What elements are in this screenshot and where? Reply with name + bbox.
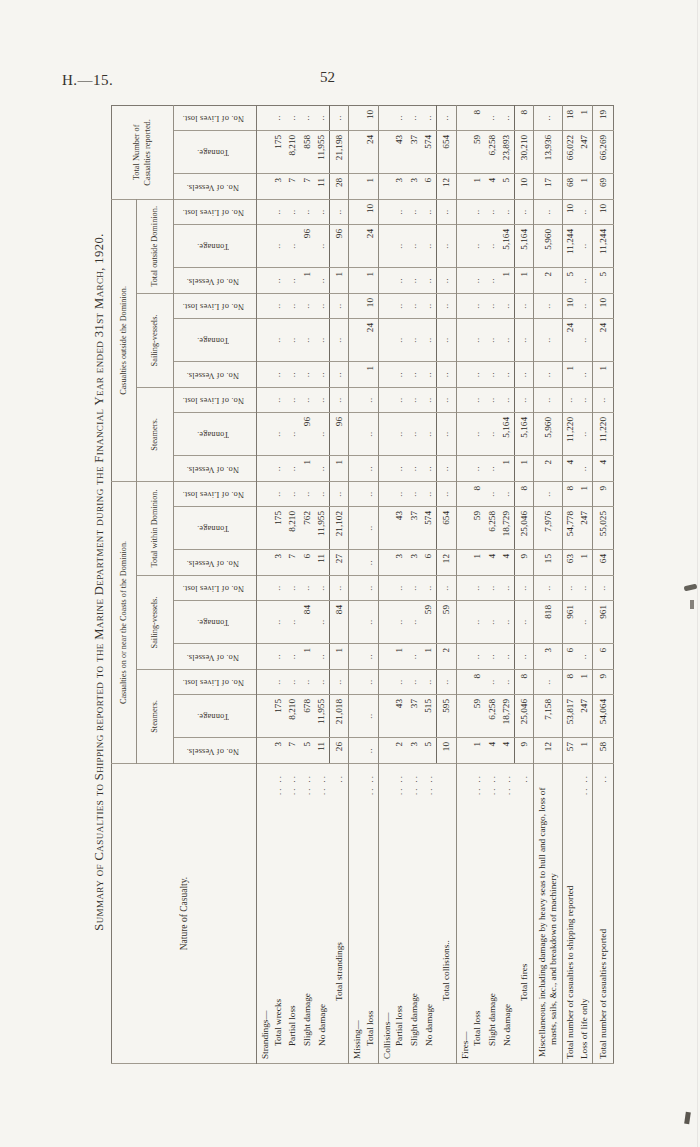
data-cell: ..	[436, 318, 456, 361]
data-cell	[257, 387, 271, 412]
row-label-cell: Total fires..	[514, 764, 534, 1064]
data-cell: 5	[421, 738, 436, 764]
data-cell: ..	[470, 576, 485, 601]
data-cell: ..	[562, 576, 577, 601]
leader-dots: .. ..	[394, 768, 404, 795]
data-cell: 68	[562, 173, 577, 199]
data-cell	[456, 550, 470, 576]
data-cell: 8	[470, 105, 485, 130]
row-label-wrap: Total fires..	[519, 768, 530, 1059]
row-label-cell: Fires—	[456, 764, 470, 1064]
table-row: Slight damage.. ..337........337........…	[407, 105, 422, 1063]
data-cell: 5,164	[499, 224, 514, 267]
data-cell: 11,955	[314, 130, 329, 173]
data-cell: ..	[577, 412, 592, 455]
data-cell: ..	[499, 318, 514, 361]
data-cell: 53,817	[562, 695, 577, 738]
data-cell	[456, 267, 470, 293]
data-cell: ..	[392, 105, 407, 130]
table-row: Total number of casualties to shipping r…	[562, 105, 577, 1063]
data-cell: 57	[562, 738, 577, 764]
data-cell: ..	[562, 387, 577, 412]
leader-dots: .. ..	[287, 768, 297, 795]
data-cell: ..	[392, 601, 407, 644]
data-cell: ..	[470, 601, 485, 644]
data-cell: ..	[577, 455, 592, 481]
data-cell: 6,258	[485, 695, 500, 738]
data-cell: 7	[285, 173, 300, 199]
data-cell: 175	[271, 507, 286, 550]
data-cell: 10	[514, 173, 534, 199]
data-cell: 15	[534, 550, 562, 576]
leaf-header-label: No. of Vessels.	[175, 369, 251, 379]
data-cell: 1	[363, 267, 378, 293]
row-label: Total fires	[519, 964, 530, 1059]
data-cell: 11,955	[314, 695, 329, 738]
data-cell: ..	[392, 412, 407, 455]
data-cell: 654	[436, 507, 456, 550]
leader-dots: .. ..	[487, 768, 497, 795]
data-cell: ..	[436, 481, 456, 506]
data-cell: ..	[470, 361, 485, 387]
leader-dots: .. ..	[502, 768, 512, 795]
data-cell: ..	[421, 267, 436, 293]
data-cell: 25,046	[514, 695, 534, 738]
data-cell	[349, 361, 363, 387]
data-cell: ..	[271, 387, 286, 412]
row-label-cell: Total wrecks.. ..	[271, 764, 286, 1064]
data-cell	[456, 318, 470, 361]
data-cell	[456, 481, 470, 506]
data-cell: ..	[392, 576, 407, 601]
data-cell: 10	[592, 199, 614, 224]
data-cell: ..	[534, 576, 562, 601]
row-label-wrap: Slight damage.. ..	[487, 768, 498, 1059]
data-cell: ..	[314, 455, 329, 481]
data-cell: 12	[534, 738, 562, 764]
data-cell: ..	[314, 670, 329, 695]
data-cell: 1	[300, 455, 315, 481]
data-cell: 8	[514, 105, 534, 130]
data-cell: ..	[499, 576, 514, 601]
data-cell	[257, 576, 271, 601]
report-code: H.—15.	[62, 72, 113, 89]
data-cell: 6	[421, 550, 436, 576]
leaf-header-label: No. of Lives lost.	[175, 677, 251, 687]
data-cell: ..	[363, 481, 378, 506]
data-cell: 3	[392, 173, 407, 199]
data-cell: ..	[485, 670, 500, 695]
row-label-cell: Total number of casualties reported..	[592, 764, 614, 1064]
leader-dots: ..	[598, 768, 608, 782]
nature-of-casualty-header: Nature of Casualty.	[112, 764, 257, 1064]
data-cell: 18,729	[499, 695, 514, 738]
row-label-wrap: Total number of casualties to shipping r…	[565, 768, 576, 1059]
data-cell	[257, 130, 271, 173]
data-cell	[378, 318, 392, 361]
data-cell	[378, 481, 392, 506]
row-label-wrap: Total wrecks.. ..	[273, 768, 284, 1059]
data-cell: 23,893	[499, 130, 514, 173]
data-cell	[257, 550, 271, 576]
data-cell: 175	[271, 695, 286, 738]
data-cell: 8,210	[285, 130, 300, 173]
data-cell: 1	[329, 644, 349, 670]
data-cell	[378, 267, 392, 293]
leaf-header-label: No. of Vessels.	[175, 181, 251, 191]
data-cell: 247	[577, 695, 592, 738]
data-cell: 10	[562, 293, 577, 318]
row-label-cell: Total strandings..	[329, 764, 349, 1064]
data-cell	[378, 199, 392, 224]
data-cell: 10	[592, 293, 614, 318]
data-cell: ..	[363, 455, 378, 481]
leaf-header-label: Tonnage.	[175, 335, 251, 345]
data-cell	[378, 601, 392, 644]
data-cell: 6	[300, 550, 315, 576]
data-cell: 1	[300, 644, 315, 670]
data-cell	[456, 224, 470, 267]
data-cell: 84	[329, 601, 349, 644]
data-cell: ..	[577, 576, 592, 601]
data-cell: ..	[499, 293, 514, 318]
data-cell	[378, 293, 392, 318]
data-cell: ..	[577, 199, 592, 224]
data-cell: ..	[514, 199, 534, 224]
data-cell: ..	[392, 199, 407, 224]
data-cell: ..	[285, 455, 300, 481]
row-label-cell: Partial loss.. ..	[392, 764, 407, 1064]
data-cell: 1	[392, 644, 407, 670]
data-cell: 2	[534, 455, 562, 481]
data-cell	[456, 576, 470, 601]
data-cell: 66,269	[592, 130, 614, 173]
data-cell: ..	[592, 576, 614, 601]
leader-dots: ..	[334, 768, 344, 782]
data-cell: ..	[329, 105, 349, 130]
data-cell: 1	[470, 173, 485, 199]
leaf-header: No. of Vessels.	[174, 173, 257, 199]
row-label: Missing—	[352, 1020, 363, 1059]
leaf-header: No. of Vessels.	[174, 644, 257, 670]
data-cell: ..	[485, 576, 500, 601]
row-label: Partial loss	[287, 1005, 298, 1059]
data-cell: 1	[514, 455, 534, 481]
data-cell: 12	[436, 173, 456, 199]
data-cell: 8	[514, 481, 534, 506]
data-cell: 37	[407, 695, 422, 738]
data-cell: 21,102	[329, 507, 349, 550]
data-cell: 10	[363, 293, 378, 318]
row-label-wrap: Slight damage.. ..	[302, 768, 313, 1059]
row-label-wrap: Total strandings..	[334, 768, 345, 1059]
data-cell: 5	[592, 267, 614, 293]
row-label-cell: Miscellaneous, including damage by heavy…	[534, 764, 562, 1064]
data-cell: ..	[314, 644, 329, 670]
leaf-header: No. of Lives lost.	[174, 293, 257, 318]
leaf-header: No. of Vessels.	[174, 267, 257, 293]
data-cell: 7	[285, 550, 300, 576]
data-cell	[349, 105, 363, 130]
data-cell: ..	[436, 267, 456, 293]
data-cell	[349, 318, 363, 361]
leaf-header: No. of Lives lost.	[174, 199, 257, 224]
data-cell: ..	[407, 670, 422, 695]
data-cell: ..	[499, 481, 514, 506]
data-cell	[456, 199, 470, 224]
leader-dots: .. ..	[365, 768, 375, 795]
table-row: Miscellaneous, including damage by heavy…	[534, 105, 562, 1063]
data-cell: ..	[271, 601, 286, 644]
leaf-header: No. of Vessels.	[174, 361, 257, 387]
data-cell	[456, 507, 470, 550]
leaf-header: No. of Lives lost.	[174, 481, 257, 506]
leaf-header-label: No. of Vessels.	[175, 651, 251, 661]
row-label: No damage	[317, 1004, 328, 1059]
data-cell: 574	[421, 507, 436, 550]
data-cell: ..	[407, 481, 422, 506]
data-cell: ..	[499, 387, 514, 412]
data-cell: 3	[407, 173, 422, 199]
data-cell: ..	[470, 267, 485, 293]
data-cell	[257, 455, 271, 481]
leaf-header-label: No. of Vessels.	[175, 745, 251, 755]
row-label-wrap: Partial loss.. ..	[394, 768, 405, 1059]
data-cell: ..	[285, 267, 300, 293]
row-label-wrap: Fires—	[460, 768, 471, 1059]
row-label: Slight damage	[302, 993, 313, 1059]
leaf-header-label: No. of Vessels.	[175, 557, 251, 567]
data-cell: 6	[562, 644, 577, 670]
table-row: Total strandings..2621,018..184..2721,10…	[329, 105, 349, 1063]
leaf-header: Tonnage.	[174, 224, 257, 267]
data-cell	[456, 601, 470, 644]
table-row: Collisions—	[378, 105, 392, 1063]
subgroup-header: Sailing-vessels.	[137, 293, 174, 387]
data-cell: 5	[562, 267, 577, 293]
leaf-header: Tonnage.	[174, 318, 257, 361]
data-cell	[456, 738, 470, 764]
data-cell	[257, 507, 271, 550]
data-cell	[257, 173, 271, 199]
row-label-wrap: Slight damage.. ..	[409, 768, 420, 1059]
row-label: Slight damage	[409, 993, 420, 1059]
data-cell: ..	[314, 267, 329, 293]
data-cell: ..	[514, 644, 534, 670]
table-row: No damage.. ..418,729........418,729..15…	[499, 105, 514, 1063]
data-cell: ..	[314, 293, 329, 318]
data-cell	[378, 130, 392, 173]
data-cell: 1	[499, 267, 514, 293]
data-cell: 27	[329, 550, 349, 576]
leaf-header: Tonnage.	[174, 412, 257, 455]
row-label-wrap: Total collisions..	[441, 768, 452, 1059]
data-cell: ..	[329, 318, 349, 361]
data-cell: 1	[577, 173, 592, 199]
data-cell: 7,158	[534, 695, 562, 738]
data-cell: 4	[499, 738, 514, 764]
data-cell: ..	[407, 412, 422, 455]
data-cell: ..	[271, 670, 286, 695]
data-cell	[349, 130, 363, 173]
data-cell: 24	[562, 318, 577, 361]
leaf-header-label: No. of Lives lost.	[175, 489, 251, 499]
table-title: Summary of Casualties to Shipping report…	[92, 100, 107, 1064]
data-cell	[257, 601, 271, 644]
data-cell: ..	[421, 293, 436, 318]
data-cell: ..	[285, 105, 300, 130]
data-cell: 8	[562, 481, 577, 506]
data-cell: 6	[592, 644, 614, 670]
data-cell: 21,198	[329, 130, 349, 173]
data-cell: ..	[363, 387, 378, 412]
data-cell: 26	[329, 738, 349, 764]
data-cell: 43	[392, 507, 407, 550]
data-cell: 84	[300, 601, 315, 644]
row-label: Total collisions..	[441, 940, 452, 1059]
data-cell: 1	[300, 267, 315, 293]
data-cell: 11,220	[562, 412, 577, 455]
data-cell: ..	[285, 361, 300, 387]
table-row: Strandings—	[257, 105, 271, 1063]
data-cell	[257, 199, 271, 224]
data-cell: 10	[562, 199, 577, 224]
table-row: Total number of casualties reported..585…	[592, 105, 614, 1063]
table-row: No damage.. ..5515..159..6574...........…	[421, 105, 436, 1063]
data-cell: 1	[363, 361, 378, 387]
leaf-header-label: No. of Lives lost.	[175, 207, 251, 217]
row-label: Total loss	[472, 1011, 483, 1059]
leaf-header-label: No. of Vessels.	[175, 275, 251, 285]
data-cell: ..	[514, 361, 534, 387]
row-label: Loss of life only	[579, 999, 590, 1059]
data-cell: 58	[592, 738, 614, 764]
data-cell: ..	[485, 318, 500, 361]
data-cell: 3	[271, 738, 286, 764]
table-header: Nature of Casualty.Casualties on or near…	[112, 105, 257, 1063]
leader-dots: ..	[519, 768, 529, 782]
data-cell: ..	[392, 318, 407, 361]
data-cell: 8	[470, 670, 485, 695]
leaf-header-label: No. of Lives lost.	[175, 301, 251, 311]
data-cell: 18,729	[499, 507, 514, 550]
data-cell: 1	[329, 455, 349, 481]
data-cell	[456, 293, 470, 318]
data-cell: ..	[485, 199, 500, 224]
data-cell: 10	[363, 199, 378, 224]
data-cell: ..	[285, 481, 300, 506]
data-cell: 3	[271, 550, 286, 576]
data-cell: ..	[499, 670, 514, 695]
row-label-wrap: No damage.. ..	[502, 768, 513, 1059]
data-cell	[456, 412, 470, 455]
data-cell: ..	[436, 670, 456, 695]
row-label-cell: Missing—	[349, 764, 363, 1064]
data-cell	[378, 576, 392, 601]
data-cell: 247	[577, 130, 592, 173]
data-cell: ..	[363, 670, 378, 695]
data-cell: ..	[285, 224, 300, 267]
table-row: Partial loss.. ..243..1....343..........…	[392, 105, 407, 1063]
data-cell: ..	[271, 576, 286, 601]
data-cell: 6,258	[485, 507, 500, 550]
data-cell: ..	[534, 199, 562, 224]
data-cell: 961	[592, 601, 614, 644]
row-label-cell: Total loss.. ..	[470, 764, 485, 1064]
data-cell: ..	[329, 361, 349, 387]
data-cell: ..	[314, 601, 329, 644]
data-cell: ..	[363, 738, 378, 764]
data-cell	[456, 105, 470, 130]
data-cell: ..	[421, 361, 436, 387]
data-cell: ..	[271, 267, 286, 293]
data-cell	[378, 224, 392, 267]
data-cell: 2	[436, 644, 456, 670]
data-cell	[378, 412, 392, 455]
data-cell: 1	[562, 361, 577, 387]
data-cell: ..	[314, 318, 329, 361]
data-cell: 5,960	[534, 412, 562, 455]
data-cell: ..	[363, 412, 378, 455]
data-cell: 96	[329, 412, 349, 455]
data-cell: 1	[470, 550, 485, 576]
data-cell: ..	[485, 644, 500, 670]
data-cell: ..	[314, 412, 329, 455]
data-cell: 8,210	[285, 695, 300, 738]
data-cell: 5,164	[514, 224, 534, 267]
row-label: Partial loss	[394, 1005, 405, 1059]
data-cell: 2	[534, 267, 562, 293]
table-row: Total fires..925,0468......925,046815,16…	[514, 105, 534, 1063]
data-cell: ..	[421, 670, 436, 695]
data-cell: 11,244	[592, 224, 614, 267]
data-cell: 7,976	[534, 507, 562, 550]
data-cell: ..	[300, 481, 315, 506]
data-cell: 1	[421, 644, 436, 670]
data-cell: 24	[592, 318, 614, 361]
data-cell: ..	[271, 293, 286, 318]
row-label-cell: Total number of casualties to shipping r…	[562, 764, 577, 1064]
data-cell: ..	[314, 199, 329, 224]
ink-smudge	[684, 1112, 691, 1125]
data-cell: ..	[499, 105, 514, 130]
data-cell: 37	[407, 130, 422, 173]
data-cell: ..	[514, 576, 534, 601]
data-cell: 858	[300, 130, 315, 173]
data-cell: ..	[577, 293, 592, 318]
data-cell: ..	[300, 199, 315, 224]
data-cell	[456, 695, 470, 738]
data-cell	[456, 130, 470, 173]
data-cell	[456, 644, 470, 670]
leaf-header: Tonnage.	[174, 130, 257, 173]
data-cell: 3	[407, 550, 422, 576]
row-label-cell: Loss of life only.. ..	[577, 764, 592, 1064]
data-cell: 9	[514, 738, 534, 764]
data-cell: ..	[314, 481, 329, 506]
leaf-header-label: Tonnage.	[175, 429, 251, 439]
data-cell: 11,244	[562, 224, 577, 267]
data-cell: 59	[470, 695, 485, 738]
data-cell: ..	[592, 387, 614, 412]
data-cell	[257, 695, 271, 738]
data-cell: ..	[499, 644, 514, 670]
data-cell: ..	[514, 293, 534, 318]
data-cell: 24	[363, 224, 378, 267]
data-cell: ..	[271, 224, 286, 267]
subgroup-header: Steamers.	[137, 670, 174, 764]
data-cell: ..	[363, 695, 378, 738]
